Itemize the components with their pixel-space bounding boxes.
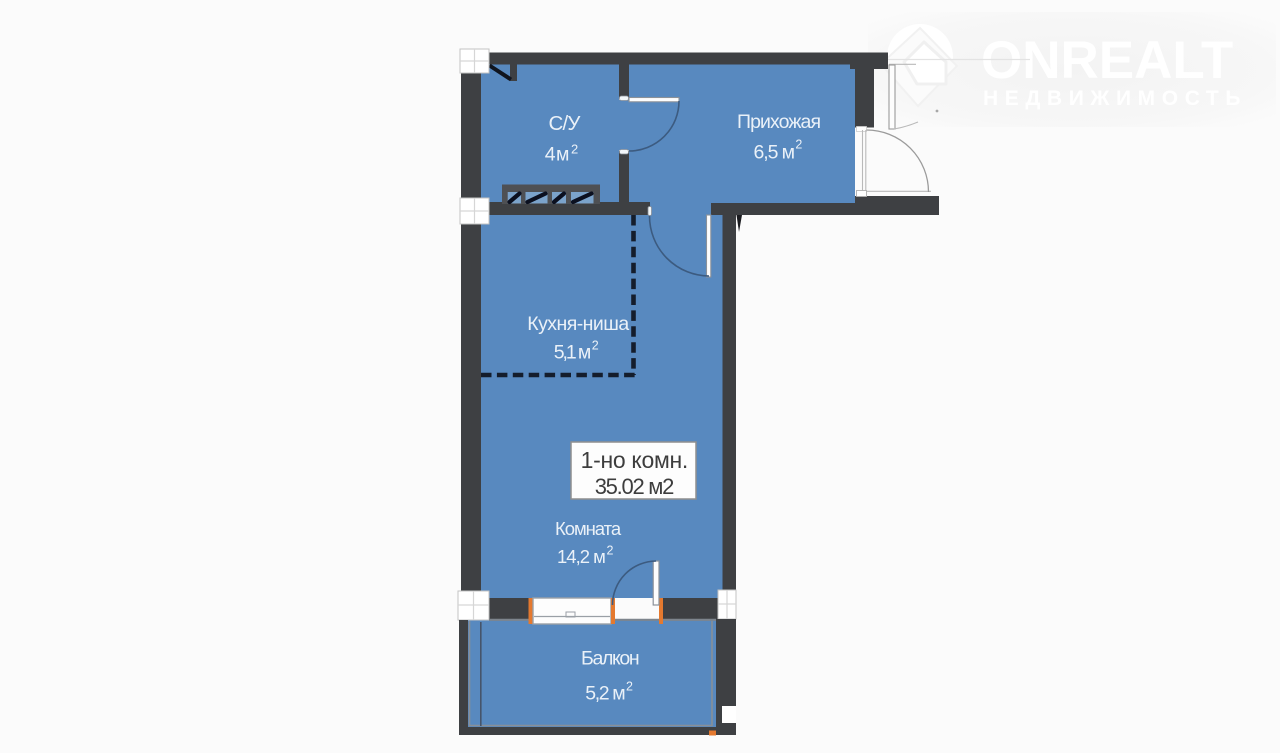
svg-text:1-но комн.: 1-но комн. [581,447,688,473]
svg-text:2: 2 [607,544,614,558]
svg-text:2: 2 [795,138,802,152]
svg-text:5,2 м: 5,2 м [585,683,625,705]
svg-text:ONREALT: ONREALT [981,31,1233,90]
svg-text:С/У: С/У [549,112,582,135]
svg-text:4 м: 4 м [545,144,569,166]
svg-text:Балкон: Балкон [581,648,639,670]
svg-text:5,1 м: 5,1 м [554,342,591,364]
svg-text:35.02 м2: 35.02 м2 [595,474,674,499]
svg-text:Прихожая: Прихожая [737,111,820,133]
svg-text:Кухня-ниша: Кухня-ниша [527,313,629,335]
svg-text:Комната: Комната [555,518,622,539]
svg-text:14,2 м: 14,2 м [557,546,605,567]
svg-text:2: 2 [626,680,633,694]
svg-text:6,5 м: 6,5 м [754,142,795,164]
svg-text:НЕДВИЖИМОСТЬ: НЕДВИЖИМОСТЬ [983,87,1247,110]
svg-text:2: 2 [592,339,599,353]
svg-text:2: 2 [571,142,578,157]
